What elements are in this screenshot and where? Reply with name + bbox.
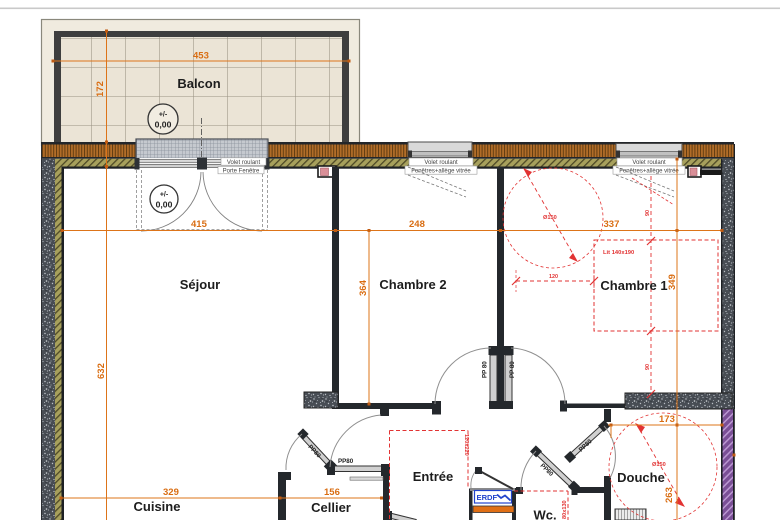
svg-text:PP80: PP80 xyxy=(338,458,354,465)
svg-text:263: 263 xyxy=(664,487,675,503)
svg-text:90: 90 xyxy=(645,210,651,216)
svg-text:Lit 140x190: Lit 140x190 xyxy=(603,250,634,256)
svg-text:Chambre 1: Chambre 1 xyxy=(600,278,667,293)
svg-text:453: 453 xyxy=(193,51,209,62)
svg-text:Balcon: Balcon xyxy=(177,76,220,91)
svg-text:Fenêtres+allège vitrée: Fenêtres+allège vitrée xyxy=(619,168,679,174)
svg-text:Douche: Douche xyxy=(617,470,665,485)
svg-text:337: 337 xyxy=(604,219,620,230)
svg-text:Séjour: Séjour xyxy=(180,277,220,292)
svg-text:173: 173 xyxy=(659,414,675,425)
svg-text:Porte Fenêtre: Porte Fenêtre xyxy=(223,168,260,174)
svg-text:Ø150: Ø150 xyxy=(652,462,666,468)
svg-text:+/-: +/- xyxy=(159,112,168,119)
svg-text:120x220: 120x220 xyxy=(463,434,469,456)
svg-text:349: 349 xyxy=(667,274,678,290)
svg-text:Volet roulant: Volet roulant xyxy=(632,160,666,166)
svg-text:Ø150: Ø150 xyxy=(543,215,557,221)
svg-text:248: 248 xyxy=(409,219,425,230)
svg-text:Volet roulant: Volet roulant xyxy=(227,160,261,166)
svg-text:Fenêtres+allège vitrée: Fenêtres+allège vitrée xyxy=(411,168,471,174)
svg-text:156: 156 xyxy=(324,487,340,498)
svg-text:364: 364 xyxy=(358,279,369,296)
svg-text:PP 80: PP 80 xyxy=(482,361,489,378)
svg-text:Entrée: Entrée xyxy=(413,469,453,484)
svg-text:Volet roulant: Volet roulant xyxy=(424,160,458,166)
svg-text:0,00: 0,00 xyxy=(156,200,173,210)
svg-text:80x130: 80x130 xyxy=(562,500,568,519)
svg-text:Cellier: Cellier xyxy=(311,500,351,515)
svg-text:329: 329 xyxy=(163,487,179,498)
svg-text:120: 120 xyxy=(549,274,558,280)
svg-text:172: 172 xyxy=(95,81,106,97)
svg-text:90: 90 xyxy=(645,364,651,370)
svg-text:Cuisine: Cuisine xyxy=(134,499,181,514)
svg-text:0,00: 0,00 xyxy=(155,120,172,130)
svg-text:415: 415 xyxy=(191,219,208,230)
svg-text:632: 632 xyxy=(96,363,107,379)
svg-text:Chambre 2: Chambre 2 xyxy=(379,277,446,292)
svg-text:+/-: +/- xyxy=(160,192,169,199)
svg-text:PP 80: PP 80 xyxy=(509,361,516,378)
svg-text:ERDF: ERDF xyxy=(477,493,498,502)
svg-text:Wc.: Wc. xyxy=(533,508,556,520)
